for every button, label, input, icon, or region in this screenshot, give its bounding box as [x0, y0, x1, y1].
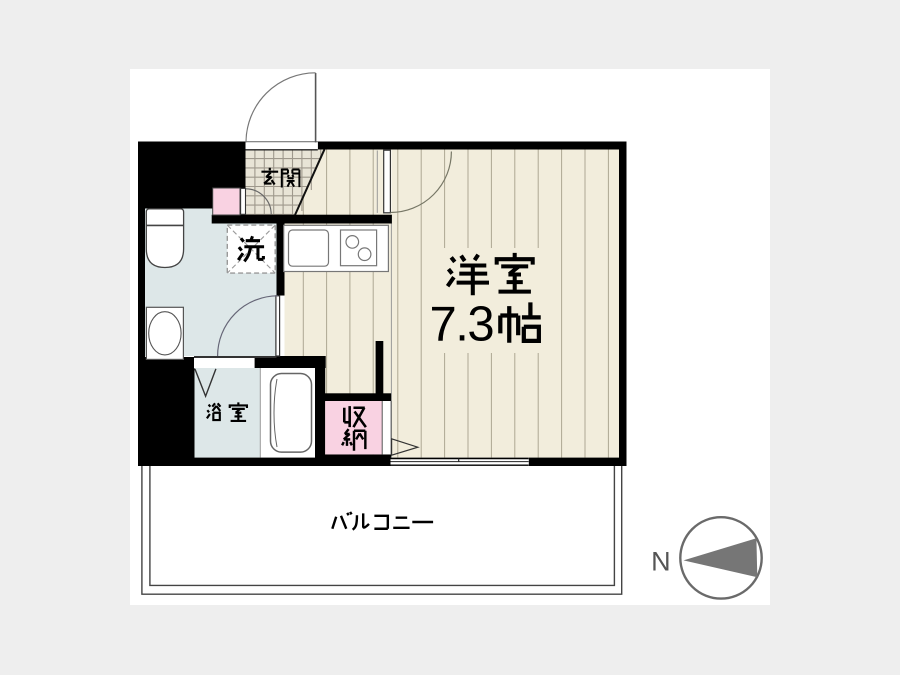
svg-text:7.3: 7.3: [430, 298, 494, 352]
svg-text:N: N: [651, 547, 671, 577]
